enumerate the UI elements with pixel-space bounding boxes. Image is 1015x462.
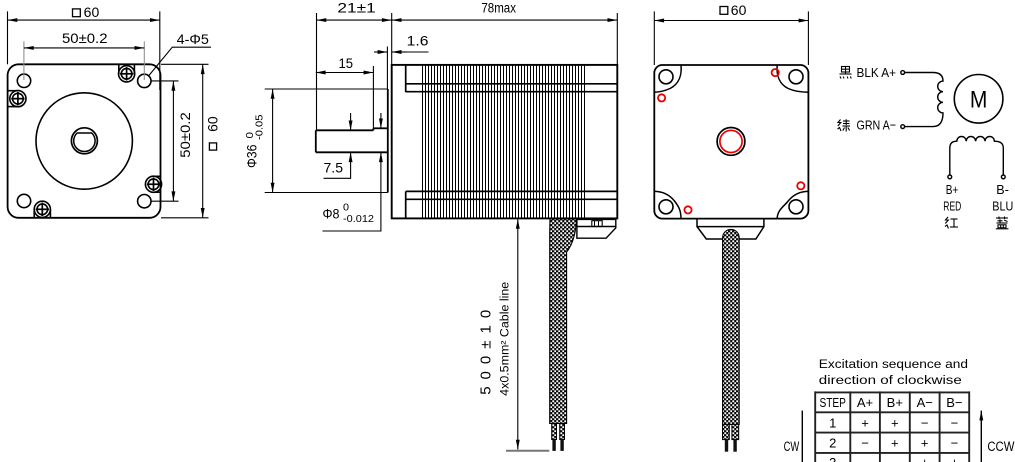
svg-text:B+: B+ <box>887 395 903 410</box>
svg-text:1: 1 <box>829 415 836 430</box>
svg-text:+: + <box>891 436 899 451</box>
svg-text:BLU: BLU <box>992 199 1013 214</box>
svg-text:0: 0 <box>343 202 349 214</box>
svg-text:+: + <box>921 436 929 451</box>
svg-text:CW: CW <box>784 439 800 454</box>
svg-text:-0.05: -0.05 <box>255 114 266 140</box>
svg-text:Φ8: Φ8 <box>323 207 340 222</box>
svg-text:−: − <box>951 415 959 430</box>
svg-text:1.6: 1.6 <box>407 33 429 48</box>
svg-text:RED: RED <box>943 199 961 214</box>
svg-text:78max: 78max <box>481 1 516 16</box>
svg-text:+: + <box>951 455 959 462</box>
svg-text:B+: B+ <box>946 182 959 197</box>
svg-text:B-: B- <box>996 182 1009 197</box>
svg-text:4x0.5mm² Cable line: 4x0.5mm² Cable line <box>499 282 511 396</box>
svg-text:15: 15 <box>339 56 354 71</box>
svg-text:−: − <box>891 455 899 462</box>
svg-text:Excitation sequence and: Excitation sequence and <box>819 357 968 371</box>
svg-text:M: M <box>970 86 988 113</box>
svg-text:60: 60 <box>205 116 220 132</box>
svg-text:−: − <box>861 455 869 462</box>
svg-text:50±0.2: 50±0.2 <box>62 31 108 46</box>
svg-text:+: + <box>921 455 929 462</box>
svg-text:−: − <box>951 436 959 451</box>
svg-text:B−: B− <box>946 395 962 410</box>
svg-text:A−: A− <box>917 395 933 410</box>
svg-text:60: 60 <box>731 3 747 18</box>
svg-text:Φ36: Φ36 <box>245 145 260 169</box>
svg-text:BLK A+: BLK A+ <box>857 65 897 80</box>
svg-text:−: − <box>861 436 869 451</box>
svg-text:direction of clockwise: direction of clockwise <box>819 373 962 387</box>
svg-text:21±1: 21±1 <box>337 1 375 16</box>
svg-text:+: + <box>861 415 869 430</box>
svg-text:2: 2 <box>829 436 836 451</box>
svg-text:GRN A−: GRN A− <box>857 118 897 133</box>
svg-text:7.5: 7.5 <box>324 161 344 176</box>
svg-text:4-Φ5: 4-Φ5 <box>177 32 209 47</box>
svg-text:500±10: 500±10 <box>478 310 495 395</box>
svg-text:3: 3 <box>829 455 836 462</box>
svg-text:STEP: STEP <box>819 395 846 410</box>
svg-text:+: + <box>891 415 899 430</box>
svg-text:CCW: CCW <box>987 439 1014 454</box>
svg-text:-0.012: -0.012 <box>343 213 374 225</box>
svg-text:50±0.2: 50±0.2 <box>178 112 193 158</box>
svg-text:A+: A+ <box>857 395 873 410</box>
svg-text:60: 60 <box>84 5 100 20</box>
svg-text:−: − <box>921 415 929 430</box>
